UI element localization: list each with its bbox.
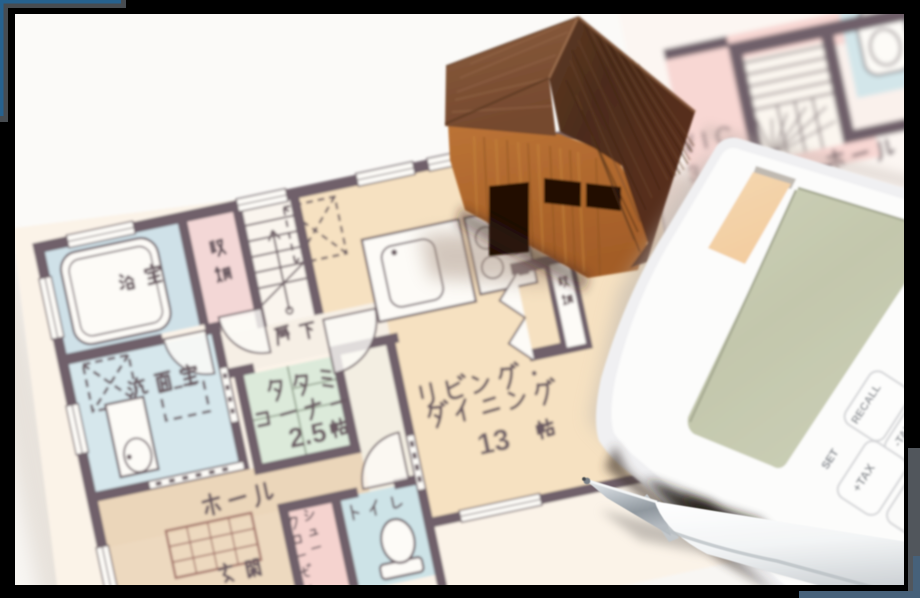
svg-text:13: 13 xyxy=(474,422,513,461)
